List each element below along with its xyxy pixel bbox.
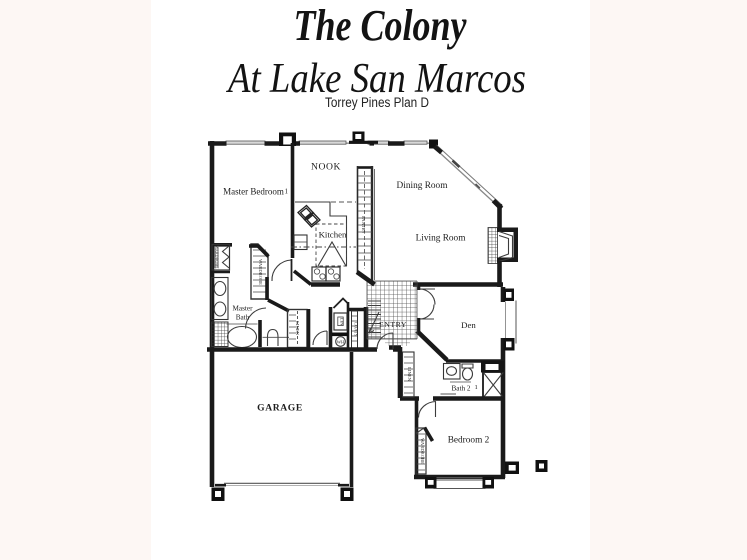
svg-text:COATS: COATS [354, 322, 359, 337]
svg-text:WARDROBE: WARDROBE [420, 438, 425, 464]
svg-text:LINEN: LINEN [407, 367, 412, 381]
svg-text:The Colony: The Colony [294, 1, 467, 50]
svg-text:Master: Master [233, 305, 254, 313]
svg-text:Den: Den [461, 320, 476, 330]
svg-text:1: 1 [285, 188, 289, 196]
svg-text:LIN: LIN [340, 318, 345, 326]
svg-text:Bath 2: Bath 2 [452, 385, 471, 393]
svg-text:1: 1 [475, 384, 478, 391]
svg-text:Torrey Pines Plan D: Torrey Pines Plan D [325, 95, 429, 110]
svg-text:GARAGE: GARAGE [257, 403, 303, 414]
svg-text:LINEN: LINEN [295, 321, 300, 335]
svg-text:WARDROBE: WARDROBE [258, 259, 263, 285]
svg-text:Dining Room: Dining Room [397, 181, 449, 191]
svg-text:NOOK: NOOK [311, 162, 341, 173]
svg-text:Kitchen: Kitchen [319, 230, 347, 240]
svg-text:Bath: Bath [236, 314, 250, 322]
svg-text:PANTRY: PANTRY [361, 216, 366, 234]
svg-text:Bedroom 2: Bedroom 2 [448, 436, 490, 446]
svg-text:Living Room: Living Room [416, 234, 467, 244]
svg-text:ENTRY: ENTRY [379, 320, 407, 329]
svg-text:WARDROBE: WARDROBE [215, 245, 220, 269]
svg-text:WH: WH [337, 339, 345, 344]
svg-text:Master Bedroom: Master Bedroom [223, 187, 284, 197]
